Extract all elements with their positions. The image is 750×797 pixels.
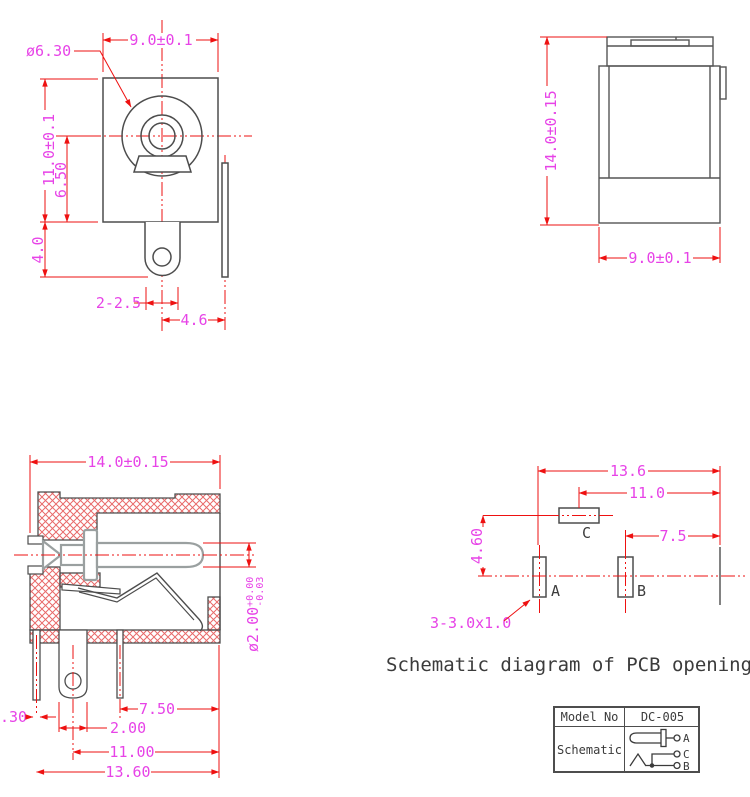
- pin-a-label: A: [683, 732, 690, 745]
- dim-label: 3-3.0x1.0: [430, 614, 511, 632]
- dim-label: ø2.00+0.00-0.03: [244, 577, 266, 652]
- junction-dot: [650, 764, 653, 767]
- housing-left-wall: [30, 567, 60, 630]
- schematic-cell: A C B: [625, 727, 700, 773]
- side-body-outline: [599, 66, 720, 223]
- technical-drawing-page: 9.0±0.1 ø6.30 11.0±0.1 6.50 4.0: [0, 0, 750, 797]
- dim-label: 7.50: [139, 700, 175, 718]
- dim-tab-length: 4.0: [29, 222, 148, 277]
- dim-slot-note: 3-3.0x1.0: [430, 600, 530, 632]
- plug-barrel-symbol: [630, 733, 661, 743]
- dim-center-height: 6.50: [52, 136, 100, 222]
- side-body: [599, 37, 726, 223]
- section-view: 14.0±0.15 ø2.00+0.00-0.03 7.50 .30 2.: [0, 453, 266, 781]
- terminal-a-circle: [674, 735, 680, 741]
- dim-label: 9.0±0.1: [628, 249, 691, 267]
- model-no-value: DC-005: [625, 708, 700, 727]
- terminal-c-circle: [674, 751, 680, 757]
- dim-side-width: 9.0±0.1: [599, 227, 720, 267]
- tip-contact-symbol: [661, 730, 666, 747]
- top-cap: [607, 37, 713, 66]
- dim-pin3-offset: 7.50: [120, 700, 219, 718]
- dim-side-height: 14.0±0.15: [540, 37, 607, 225]
- dim-barrel-dia: ø6.30: [26, 42, 131, 107]
- side-lock-tab: [720, 67, 726, 99]
- dim-label: 4.0: [29, 236, 47, 263]
- front-view: 9.0±0.1 ø6.30 11.0±0.1 6.50 4.0: [26, 20, 252, 332]
- model-no-label: Model No: [555, 708, 625, 727]
- dim-pin-offset: 4.6: [162, 311, 225, 329]
- dim-label: 14.0±0.15: [87, 453, 168, 471]
- dim-tab-offset: 11.00: [73, 743, 219, 761]
- schematic-symbol: A C B: [625, 727, 700, 773]
- pad-c-label: C: [582, 524, 591, 542]
- dim-label: 7.5: [659, 527, 686, 545]
- dim-left-pin: .30: [0, 708, 56, 726]
- dim-tab-width: 2.00: [59, 702, 146, 737]
- pad-a-label: A: [551, 582, 560, 600]
- pcb-pads: [533, 508, 633, 597]
- spec-table: Model No DC-005 Schematic A C B: [553, 706, 700, 773]
- dim-label: 11.00: [109, 743, 154, 761]
- pad-b-label: B: [637, 582, 646, 600]
- dim-label: 6.50: [52, 162, 70, 198]
- dim-label: 11.0: [629, 484, 665, 502]
- pcb-centerlines: [478, 516, 748, 616]
- dim-pcb-b: 7.5: [626, 527, 721, 557]
- pcb-view: 13.6 11.0 7.5 4.60 3-3.0x1.0 A: [430, 462, 748, 632]
- side-view: 14.0±0.15 9.0±0.1: [540, 37, 726, 267]
- dim-label: 4.60: [468, 528, 486, 564]
- pin-retainer-tabs: [28, 536, 43, 574]
- dim-label: 14.0±0.15: [542, 90, 560, 171]
- pin-b-label: B: [683, 760, 690, 773]
- dim-label: 2.00: [110, 719, 146, 737]
- dim-label: 13.60: [105, 763, 150, 781]
- dim-pcb-c: 11.0: [579, 484, 720, 508]
- key-notch: [134, 156, 191, 172]
- front-body: [103, 78, 228, 277]
- dim-label: ø6.30: [26, 42, 71, 60]
- pcb-caption: Schematic diagram of PCB opening: [386, 654, 750, 676]
- dim-tab-hole: 2-2.5: [96, 287, 178, 312]
- dim-label: 13.6: [610, 462, 646, 480]
- drawing-canvas: 9.0±0.1 ø6.30 11.0±0.1 6.50 4.0: [0, 0, 750, 797]
- dim-front-width: 9.0±0.1: [103, 31, 218, 72]
- terminal-b-circle: [674, 763, 680, 769]
- housing-right-wall: [208, 597, 220, 630]
- side-terminal: [222, 163, 228, 277]
- housing-top-wall: [38, 492, 220, 540]
- dim-front-height: 11.0±0.1: [38, 79, 98, 222]
- dim-pcb-total: 13.6: [538, 462, 720, 545]
- dim-label: 9.0±0.1: [129, 31, 192, 49]
- dim-label: 4.6: [180, 311, 207, 329]
- switch-symbol: [630, 754, 646, 766]
- front-body-outline: [103, 78, 218, 222]
- dim-label: 2-2.5: [96, 294, 141, 312]
- dim-label: .30: [0, 708, 27, 726]
- schematic-label: Schematic: [555, 727, 625, 773]
- dim-pcb-vertical: 4.60: [467, 516, 559, 577]
- dim-overall: 13.60: [37, 763, 220, 781]
